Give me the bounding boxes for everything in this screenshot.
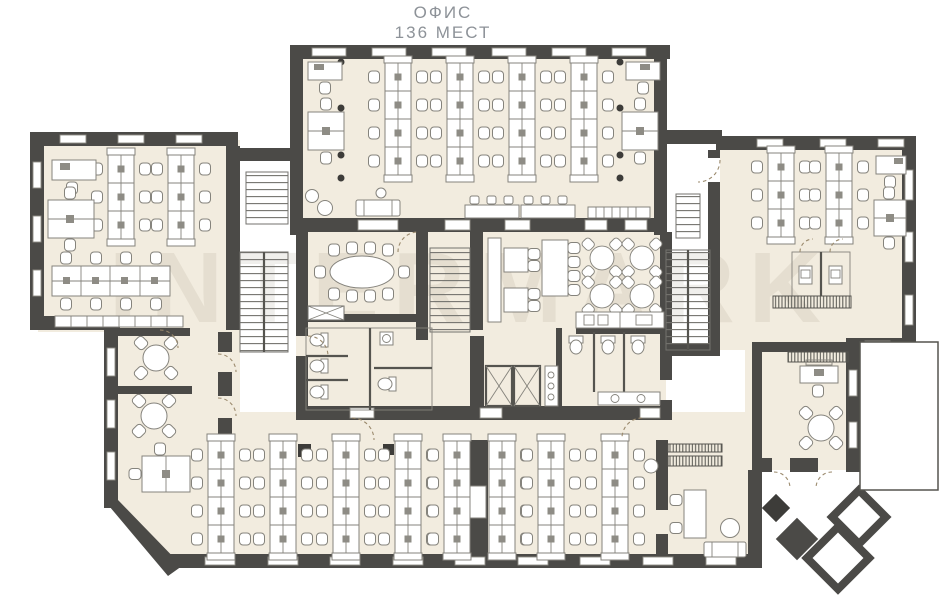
plan-title-line1: ОФИС <box>414 3 473 22</box>
stair-center <box>430 248 470 332</box>
plan-title: ОФИС 136 МЕСТ <box>395 3 492 42</box>
adjacent-structure <box>860 342 938 490</box>
floor-plan: INTERMARK <box>0 0 940 596</box>
floor-plan-page: INTERMARK <box>0 0 940 596</box>
plan-title-line2: 136 МЕСТ <box>395 23 492 42</box>
stair-left <box>240 172 288 352</box>
